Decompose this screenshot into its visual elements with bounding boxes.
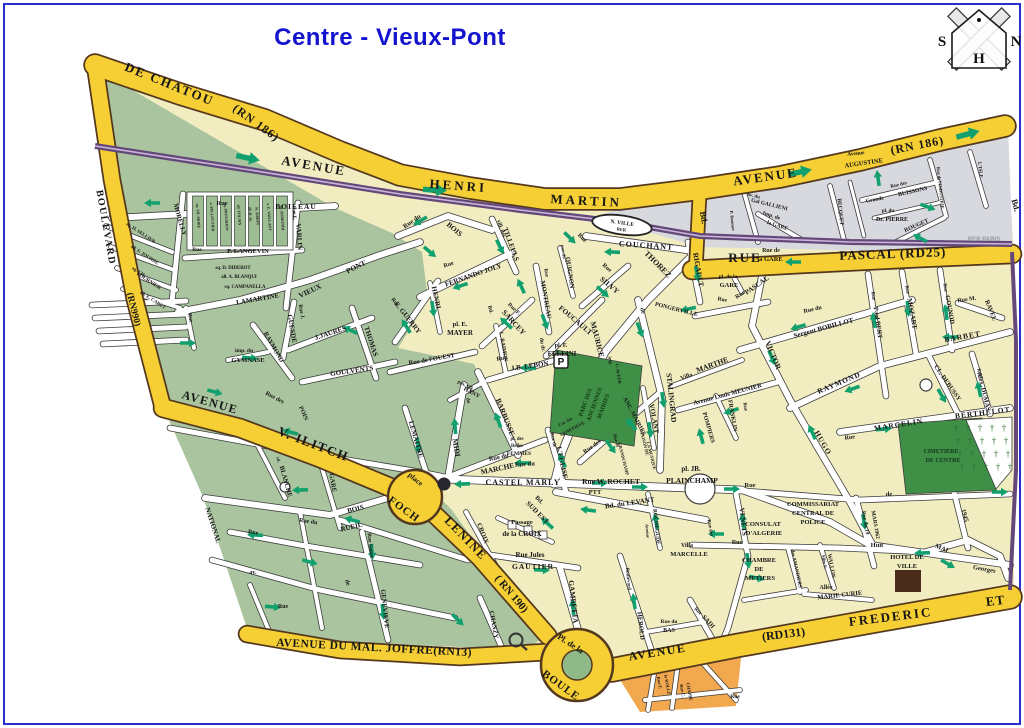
cemetery-cross-icon: † xyxy=(956,436,961,446)
map-label: pl. de la xyxy=(719,274,738,280)
map-label: CIMETIERE xyxy=(923,449,958,455)
compass-dot xyxy=(977,18,981,22)
map-label: all. A. BLANQUI xyxy=(221,275,257,280)
cemetery-cross-icon: † xyxy=(994,449,999,459)
map-label: la GARE xyxy=(757,256,782,263)
map-label: pl. E. xyxy=(453,321,468,328)
map-label: DE CENTRE xyxy=(926,458,961,464)
map-label: pl. F. xyxy=(555,343,568,349)
map-label: Rue xyxy=(744,482,755,489)
map-label: Rue W. ROCHET xyxy=(582,477,640,486)
map-label: Rue du xyxy=(515,460,536,468)
map-label: sq. D. DIDEROT xyxy=(215,266,251,271)
cemetery-cross-icon: † xyxy=(1006,449,1011,459)
map-label: Rue xyxy=(192,247,202,253)
map-label: BAS xyxy=(663,628,675,634)
map-label: DE xyxy=(754,566,763,573)
map-page: †††††††††††††††††††† N. VILLERER P DE CH… xyxy=(0,0,1024,728)
transit-stop-icon xyxy=(438,478,451,491)
map-label: de la CROIX xyxy=(502,530,541,538)
map-label: FELLINI xyxy=(548,350,577,358)
cemetery-cross-icon: † xyxy=(1002,423,1007,433)
map-label: P. LANGEVIN xyxy=(227,248,269,255)
cemetery-cross-icon: † xyxy=(982,449,987,459)
map-label: GYMNASE xyxy=(231,357,264,364)
map-label: av. xyxy=(249,570,257,576)
compass-letter-h: H xyxy=(973,51,985,67)
compass-rose: S N H xyxy=(938,8,1022,70)
map-label: imp. du xyxy=(235,348,253,354)
map-label: RER PARIS xyxy=(968,237,1000,243)
map-label: CENTRAL DE xyxy=(792,510,834,517)
map-canvas: †††††††††††††††††††† N. VILLERER P DE CH… xyxy=(0,0,1024,728)
map-label: pl. JB. xyxy=(681,465,701,473)
hotel-de-ville-building xyxy=(895,570,921,592)
map-label: HOTEL DE xyxy=(890,554,923,561)
parking-letter: P xyxy=(558,357,565,368)
map-label: sq. CAMPANELLA xyxy=(225,285,266,290)
map-label: Passage xyxy=(511,519,533,526)
map-label: GAUTIER xyxy=(512,562,554,571)
cemetery-cross-icon: † xyxy=(1004,436,1009,446)
map-label: PTT xyxy=(589,489,602,496)
map-label: POLICE xyxy=(801,519,826,526)
street xyxy=(692,545,840,548)
map-label: pl. du xyxy=(882,209,894,214)
cemetery-cross-icon: † xyxy=(954,423,959,433)
map-label: Allée xyxy=(820,585,833,591)
map-label: CASTEL MARLY xyxy=(485,478,560,487)
map-label: PLAINCHAMP xyxy=(666,476,718,485)
map-label: Rue xyxy=(732,540,743,546)
map-label: Villa xyxy=(681,543,693,549)
map-label: Rue E. xyxy=(291,206,297,222)
cemetery-cross-icon: † xyxy=(980,436,985,446)
cemetery-cross-icon: † xyxy=(996,462,1001,472)
cemetery-cross-icon: † xyxy=(968,436,973,446)
map-label: Belles xyxy=(511,444,523,449)
map-label: de xyxy=(886,491,893,498)
map-label: Dr. PIERRE xyxy=(876,217,908,223)
map-label: Huit xyxy=(871,542,884,549)
cemetery-cross-icon: † xyxy=(960,462,965,472)
map-label: Rue du xyxy=(661,619,678,625)
compass-icon: S N H xyxy=(933,4,1024,86)
map-label: Rue xyxy=(730,694,740,700)
map-label: COMMISSARIAT xyxy=(787,501,840,508)
page-title: Centre - Vieux-Pont xyxy=(190,24,590,52)
map-label: GARE xyxy=(720,282,739,289)
cemetery-cross-icon: † xyxy=(990,423,995,433)
cemetery-cross-icon: † xyxy=(984,462,989,472)
map-label: Bd. xyxy=(1009,198,1022,213)
map-label: METIERS xyxy=(745,575,775,582)
compass-letter-n: N xyxy=(1011,34,1022,50)
map-label: MARCELLE xyxy=(670,551,708,558)
cemetery-cross-icon: † xyxy=(972,462,977,472)
map-label: CONSULAT xyxy=(745,521,781,528)
map-label: D'ALGERIE xyxy=(746,530,782,537)
map-label: MAYER xyxy=(447,329,474,337)
map-label: CHAMBRE xyxy=(742,557,776,564)
cemetery-cross-icon: † xyxy=(978,423,983,433)
map-label: Rue de xyxy=(762,248,780,254)
map-label: pl. des xyxy=(510,437,523,442)
map-label: FEMMES xyxy=(507,451,531,457)
cemetery-cross-icon: † xyxy=(1008,462,1013,472)
map-label: Rue Jules xyxy=(516,551,545,559)
cemetery-cross-icon: † xyxy=(966,423,971,433)
map-label: ET xyxy=(985,592,1006,609)
map-label: Rue xyxy=(278,604,289,610)
compass-letter-s: S xyxy=(938,34,946,50)
cul-de-sac xyxy=(920,379,932,391)
roundabout-center xyxy=(562,650,592,680)
cemetery-cross-icon: † xyxy=(992,436,997,446)
cemetery-cross-icon: † xyxy=(970,449,975,459)
map-label: VILLE xyxy=(897,563,917,570)
